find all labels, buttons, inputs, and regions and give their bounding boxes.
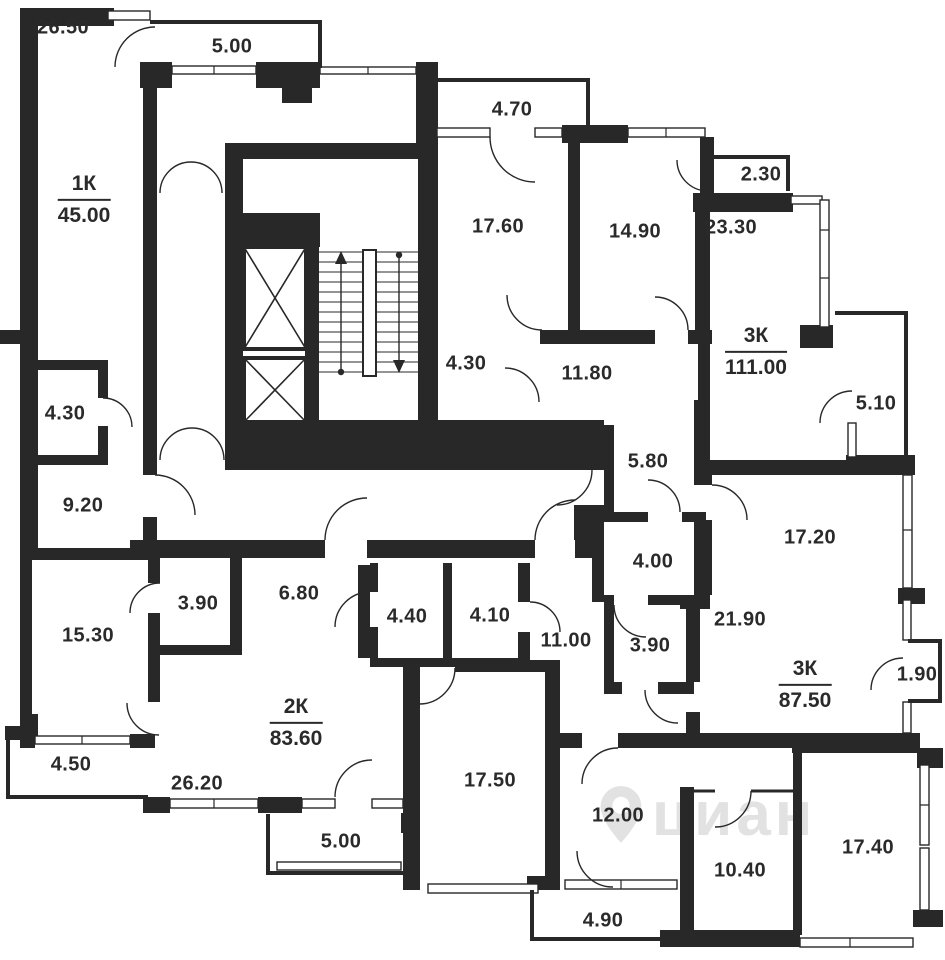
apartment-name: 3К bbox=[779, 657, 832, 686]
room-area-label: 15.30 bbox=[62, 625, 114, 648]
room-area-label: 12.00 bbox=[592, 805, 644, 828]
apartment-name: 1К bbox=[58, 172, 111, 201]
room-area-label: 3.90 bbox=[630, 635, 671, 658]
apartment-name: 3К bbox=[725, 324, 787, 353]
room-area-label: 17.60 bbox=[472, 216, 524, 239]
room-area-label: 11.80 bbox=[562, 363, 613, 386]
apartment-area: 83.60 bbox=[270, 724, 323, 751]
room-area-label: 4.00 bbox=[633, 551, 674, 574]
apartment-label: 2К 83.60 bbox=[270, 695, 323, 751]
room-area-label: 10.40 bbox=[714, 860, 766, 883]
room-area-label: 11.00 bbox=[541, 630, 592, 653]
floorplan-drawing bbox=[0, 0, 945, 960]
room-area-label: 4.30 bbox=[45, 403, 86, 426]
room-area-label: 6.80 bbox=[279, 583, 320, 606]
room-area-label: 21.90 bbox=[714, 609, 766, 632]
floor-plan: циан bbox=[0, 0, 945, 960]
room-area-label: 26.20 bbox=[171, 773, 223, 796]
apartment-label: 3К 111.00 bbox=[725, 324, 787, 380]
room-area-label: 17.40 bbox=[842, 837, 894, 860]
room-area-label: 5.10 bbox=[856, 393, 897, 416]
room-area-label: 4.50 bbox=[51, 754, 92, 777]
room-area-label: 4.90 bbox=[583, 910, 624, 933]
apartment-area: 45.00 bbox=[58, 201, 111, 228]
room-area-label: 4.40 bbox=[387, 606, 428, 629]
elevator-shafts bbox=[244, 247, 306, 422]
room-area-label: 14.90 bbox=[609, 221, 661, 244]
room-area-label: 9.20 bbox=[63, 495, 104, 518]
room-area-label: 26.50 bbox=[37, 17, 89, 40]
room-area-label: 4.30 bbox=[446, 353, 487, 376]
room-area-label: 23.30 bbox=[705, 217, 757, 240]
apartment-label: 3К 87.50 bbox=[779, 657, 832, 713]
room-area-label: 4.10 bbox=[470, 605, 511, 628]
room-area-label: 5.00 bbox=[212, 36, 253, 59]
staircase bbox=[319, 250, 420, 376]
room-area-label: 17.20 bbox=[784, 527, 836, 550]
apartment-area: 87.50 bbox=[779, 686, 832, 713]
room-area-label: 5.80 bbox=[628, 451, 669, 474]
room-area-label: 17.50 bbox=[464, 770, 516, 793]
room-area-label: 2.30 bbox=[741, 164, 782, 187]
apartment-area: 111.00 bbox=[725, 353, 787, 380]
room-area-label: 3.90 bbox=[178, 593, 219, 616]
apartment-name: 2К bbox=[270, 695, 323, 724]
room-area-label: 1.90 bbox=[897, 664, 938, 687]
apartment-label: 1К 45.00 bbox=[58, 172, 111, 228]
room-area-label: 4.70 bbox=[492, 99, 533, 122]
walls bbox=[0, 8, 943, 947]
room-area-label: 5.00 bbox=[321, 831, 362, 854]
